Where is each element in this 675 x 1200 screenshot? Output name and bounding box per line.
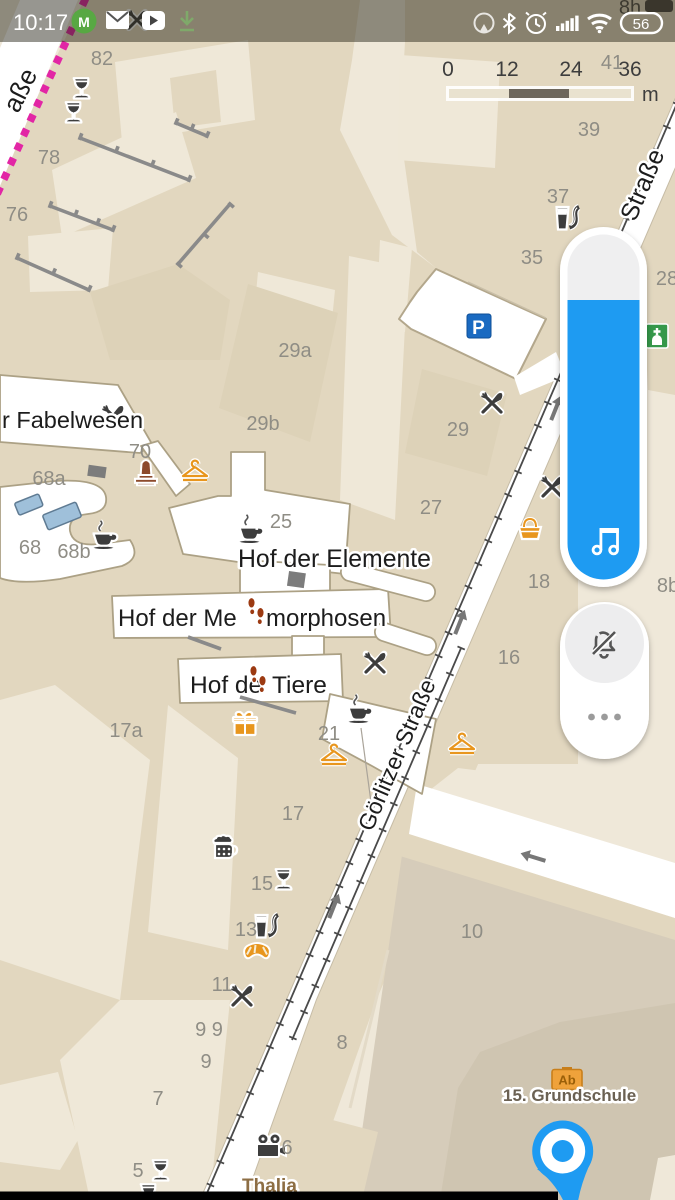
svg-text:r Fabelwesen: r Fabelwesen <box>2 407 143 433</box>
svg-text:27: 27 <box>420 497 442 519</box>
svg-text:68a: 68a <box>32 468 66 490</box>
svg-text:24: 24 <box>559 58 583 81</box>
svg-text:17a: 17a <box>109 720 143 742</box>
svg-text:39: 39 <box>578 119 600 141</box>
svg-text:8b: 8b <box>657 575 675 597</box>
svg-text:68b: 68b <box>57 541 90 563</box>
svg-text:10:17: 10:17 <box>13 10 68 35</box>
svg-text:9: 9 <box>200 1051 211 1073</box>
svg-text:Hof der Elemente: Hof der Elemente <box>238 546 431 573</box>
svg-text:Hof der Me: Hof der Me <box>118 605 237 632</box>
svg-text:70: 70 <box>129 441 151 463</box>
svg-text:m: m <box>642 84 659 106</box>
svg-text:25: 25 <box>270 511 292 533</box>
svg-text:37: 37 <box>547 186 569 208</box>
svg-text:35: 35 <box>521 247 543 269</box>
svg-text:9 9: 9 9 <box>195 1019 223 1041</box>
svg-text:68: 68 <box>19 537 41 559</box>
svg-text:15. Grundschule: 15. Grundschule <box>503 1086 636 1105</box>
svg-text:18: 18 <box>528 571 550 593</box>
svg-text:29a: 29a <box>278 340 312 362</box>
svg-text:56: 56 <box>633 16 650 33</box>
svg-text:10: 10 <box>461 921 483 943</box>
svg-text:7: 7 <box>152 1088 163 1110</box>
svg-text:29: 29 <box>447 419 469 441</box>
svg-text:5: 5 <box>132 1160 143 1182</box>
svg-text:8: 8 <box>336 1032 347 1054</box>
svg-text:28: 28 <box>656 268 675 290</box>
svg-text:13: 13 <box>235 919 257 941</box>
svg-text:Tiere: Tiere <box>272 672 327 699</box>
svg-text:76: 76 <box>6 204 28 226</box>
svg-text:12: 12 <box>495 58 518 81</box>
svg-text:17: 17 <box>282 803 304 825</box>
svg-text:morphosen: morphosen <box>266 605 386 632</box>
svg-text:16: 16 <box>498 647 520 669</box>
svg-text:29b: 29b <box>246 413 279 435</box>
svg-text:21: 21 <box>318 723 340 745</box>
svg-text:78: 78 <box>38 147 60 169</box>
svg-text:82: 82 <box>91 48 113 70</box>
svg-text:M: M <box>78 14 90 30</box>
svg-text:0: 0 <box>442 58 454 81</box>
svg-text:11: 11 <box>212 974 233 996</box>
svg-text:6: 6 <box>281 1137 292 1159</box>
svg-text:36: 36 <box>618 58 641 81</box>
svg-text:15: 15 <box>251 873 273 895</box>
